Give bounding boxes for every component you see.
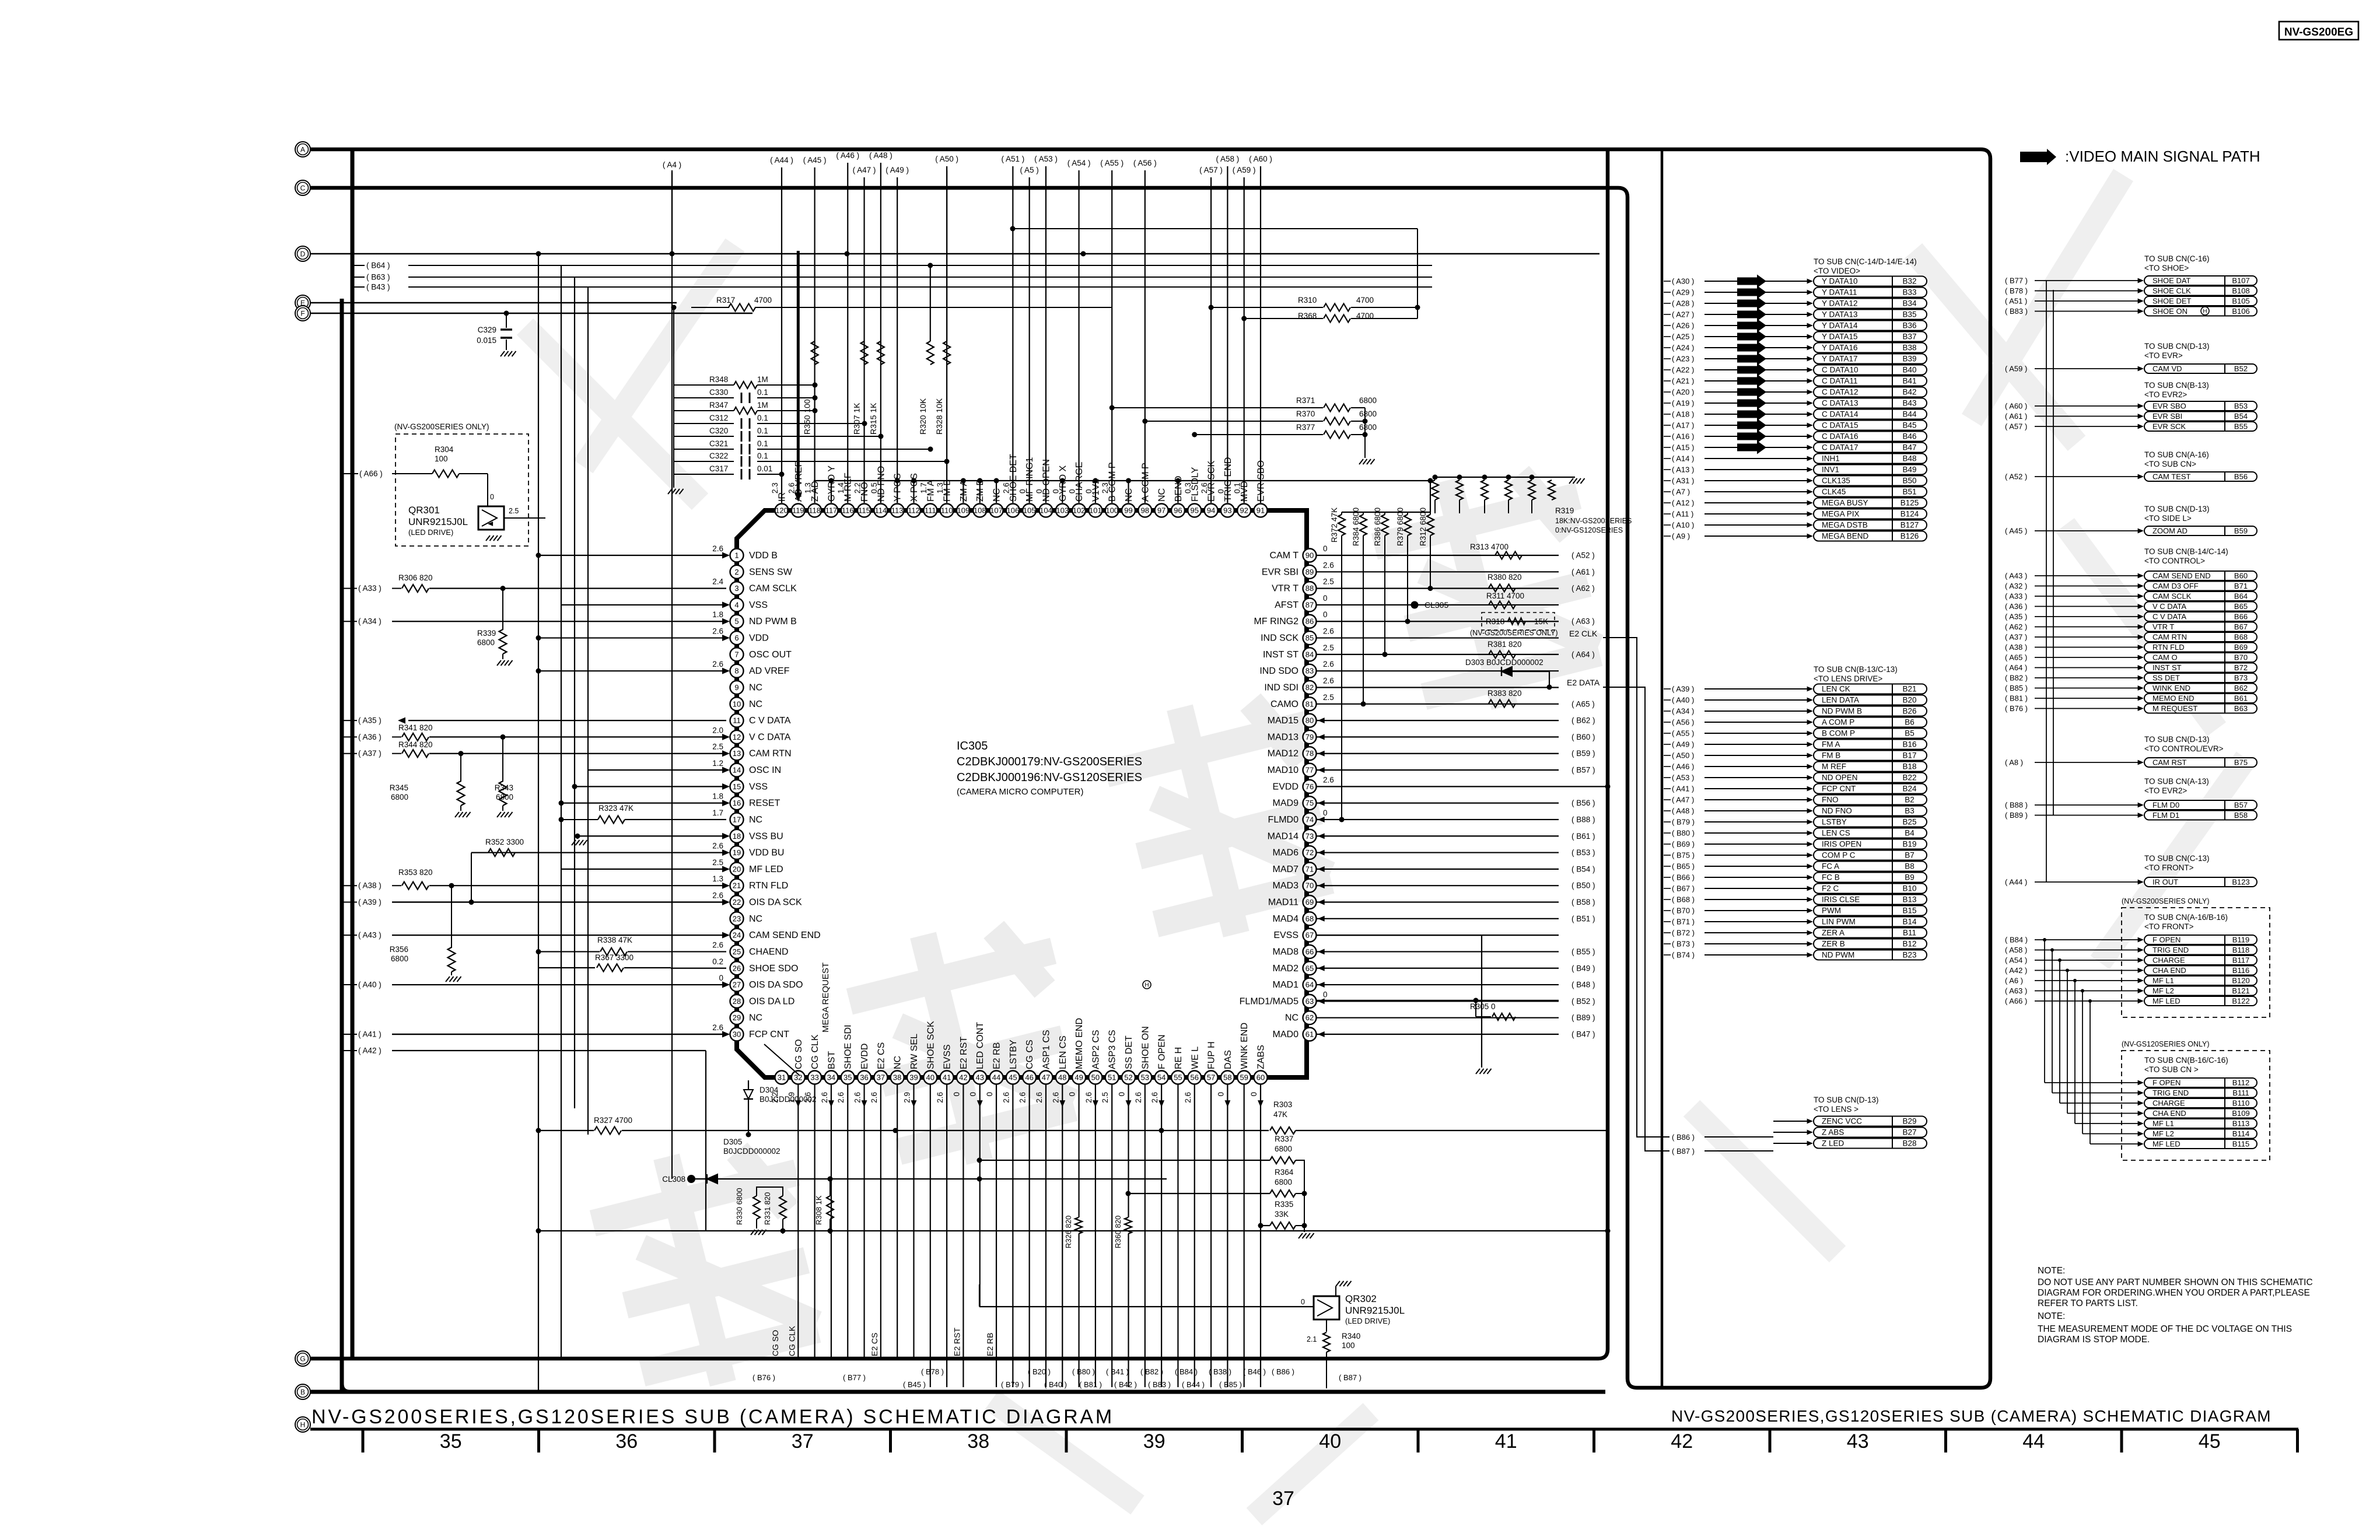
- svg-text:MEGA PIX: MEGA PIX: [1822, 510, 1860, 519]
- svg-text:TO SUB CN(D-13): TO SUB CN(D-13): [2144, 505, 2210, 513]
- svg-text:CAM SCLK: CAM SCLK: [749, 584, 797, 594]
- svg-text:82: 82: [1305, 683, 1314, 692]
- svg-text:AFST: AFST: [1275, 600, 1298, 610]
- svg-text:78: 78: [1305, 749, 1314, 758]
- svg-text:( B67 ): ( B67 ): [1672, 884, 1695, 893]
- svg-text:( B45 ): ( B45 ): [903, 1380, 926, 1389]
- svg-text:98: 98: [1141, 506, 1149, 515]
- svg-text:TO SUB CN(C-13): TO SUB CN(C-13): [2144, 854, 2210, 863]
- svg-text:37: 37: [792, 1430, 814, 1452]
- svg-text:1M: 1M: [757, 401, 768, 409]
- svg-text:VTR T: VTR T: [1272, 584, 1298, 594]
- svg-text:R303: R303: [1273, 1100, 1292, 1109]
- svg-text:( B76 ): ( B76 ): [2005, 704, 2028, 713]
- svg-text:VDD B: VDD B: [749, 551, 778, 561]
- svg-text:TRIG END: TRIG END: [2152, 1088, 2189, 1097]
- svg-text:( A66 ): ( A66 ): [2005, 997, 2027, 1006]
- svg-text:3: 3: [734, 584, 738, 593]
- svg-text:1M: 1M: [757, 375, 768, 384]
- svg-text:Y DATA13: Y DATA13: [1822, 310, 1858, 319]
- svg-text:( B79 ): ( B79 ): [1672, 818, 1695, 827]
- svg-text:( B70 ): ( B70 ): [1672, 907, 1695, 915]
- svg-text:2.6: 2.6: [712, 891, 723, 900]
- svg-text:TRIG END: TRIG END: [2152, 946, 2189, 954]
- svg-text:( B89 ): ( B89 ): [1571, 1013, 1595, 1022]
- svg-text:( A53 ): ( A53 ): [1672, 773, 1694, 782]
- svg-text:MF L2: MF L2: [2152, 986, 2174, 995]
- svg-text:D: D: [300, 250, 306, 258]
- svg-text:( A55 ): ( A55 ): [1100, 159, 1123, 167]
- svg-text:CAMO: CAMO: [1270, 699, 1298, 709]
- svg-text:B38: B38: [1902, 344, 1916, 352]
- svg-text:(NV-GS120SERIES ONLY): (NV-GS120SERIES ONLY): [2122, 1040, 2210, 1048]
- svg-text:2.6: 2.6: [712, 544, 723, 553]
- svg-text:( A37 ): ( A37 ): [358, 749, 381, 758]
- svg-text:( B38 ): ( B38 ): [1209, 1367, 1231, 1376]
- svg-text:2.0: 2.0: [712, 726, 723, 734]
- svg-text:103: 103: [1056, 506, 1069, 515]
- svg-text:EVSS: EVSS: [1273, 930, 1298, 940]
- svg-text:<TO LENS >: <TO LENS >: [1814, 1105, 1859, 1114]
- svg-text:117: 117: [825, 506, 838, 515]
- svg-text:15K: 15K: [1534, 617, 1548, 626]
- svg-text:B9: B9: [1905, 873, 1915, 882]
- svg-text:B5: B5: [1905, 729, 1915, 738]
- svg-text:TO SUB CN(B-13/C-13): TO SUB CN(B-13/C-13): [1814, 665, 1898, 674]
- svg-text:NC: NC: [749, 914, 762, 924]
- svg-text:Z LED: Z LED: [1822, 1139, 1845, 1148]
- svg-text:CAM TEST: CAM TEST: [2152, 473, 2191, 481]
- svg-text:B55: B55: [2234, 422, 2248, 431]
- svg-text:12: 12: [733, 733, 741, 741]
- svg-text:MAD15: MAD15: [1268, 716, 1298, 726]
- svg-text:C DATA14: C DATA14: [1822, 410, 1859, 419]
- svg-text:109: 109: [957, 506, 970, 515]
- svg-text:R305 0: R305 0: [1470, 1002, 1496, 1011]
- svg-text:R384 6800: R384 6800: [1352, 508, 1360, 546]
- svg-text:R328 10K: R328 10K: [935, 398, 944, 435]
- svg-text:2.6: 2.6: [1323, 561, 1334, 569]
- svg-text:<TO EVR2>: <TO EVR2>: [2144, 390, 2187, 399]
- svg-text:40: 40: [926, 1073, 935, 1082]
- svg-text:( A41 ): ( A41 ): [1672, 785, 1694, 793]
- svg-text:17: 17: [733, 815, 741, 824]
- svg-text:10: 10: [733, 699, 741, 708]
- svg-text:F OPEN: F OPEN: [2152, 1079, 2180, 1087]
- svg-text:ZABS: ZABS: [1256, 1045, 1266, 1069]
- svg-text:B12: B12: [1902, 940, 1916, 949]
- svg-text:MF RING2: MF RING2: [1254, 617, 1299, 626]
- svg-text:TO SUB CN(B-13): TO SUB CN(B-13): [2144, 381, 2209, 390]
- svg-text:( A56 ): ( A56 ): [1672, 718, 1694, 727]
- svg-text:68: 68: [1305, 914, 1314, 923]
- svg-text:( A9 ): ( A9 ): [1672, 532, 1690, 541]
- svg-text:SHOE DET: SHOE DET: [2152, 297, 2192, 306]
- svg-text:0: 0: [1323, 544, 1328, 553]
- svg-text:( A16 ): ( A16 ): [1672, 432, 1694, 441]
- svg-text:( B55 ): ( B55 ): [1571, 947, 1595, 956]
- svg-text:115: 115: [858, 506, 870, 515]
- svg-text:( A48 ): ( A48 ): [869, 151, 892, 160]
- svg-text:43: 43: [975, 1073, 984, 1082]
- svg-text::VIDEO MAIN SIGNAL PATH: :VIDEO MAIN SIGNAL PATH: [2065, 148, 2260, 165]
- svg-text:37: 37: [877, 1073, 885, 1082]
- svg-text:0: 0: [1323, 990, 1328, 999]
- svg-text:R371: R371: [1296, 396, 1315, 405]
- svg-text:( A45 ): ( A45 ): [2005, 527, 2027, 535]
- svg-text:72: 72: [1305, 848, 1314, 857]
- svg-text:INV1: INV1: [1822, 466, 1839, 474]
- svg-text:B51: B51: [1902, 488, 1916, 496]
- svg-text:( A18 ): ( A18 ): [1672, 410, 1694, 419]
- svg-text:57: 57: [1207, 1073, 1215, 1082]
- svg-text:2.6: 2.6: [1051, 1092, 1060, 1103]
- svg-text:MAD6: MAD6: [1273, 848, 1299, 858]
- svg-text:CAM O: CAM O: [2152, 653, 2178, 662]
- svg-text:ZOOM AD: ZOOM AD: [2152, 527, 2187, 535]
- svg-text:MAD0: MAD0: [1273, 1030, 1299, 1039]
- svg-text:( B57 ): ( B57 ): [1571, 766, 1595, 775]
- svg-text:B49: B49: [1902, 466, 1916, 474]
- svg-text:2.6: 2.6: [1084, 1092, 1093, 1103]
- svg-text:TO SUB CN(B-14/C-14): TO SUB CN(B-14/C-14): [2144, 547, 2228, 556]
- svg-text:53: 53: [1141, 1073, 1149, 1082]
- svg-text:2.6: 2.6: [1323, 660, 1334, 668]
- svg-text:NC: NC: [749, 699, 762, 709]
- svg-text:R353 820: R353 820: [398, 868, 433, 877]
- svg-text:C329: C329: [478, 325, 496, 334]
- svg-text:<TO SUB CN >: <TO SUB CN >: [2144, 1065, 2199, 1074]
- svg-text:D303 B0JCDD000002: D303 B0JCDD000002: [1465, 658, 1543, 667]
- svg-text:MAD13: MAD13: [1268, 732, 1298, 742]
- svg-text:LIN PWM: LIN PWM: [1822, 918, 1856, 926]
- svg-text:47: 47: [1042, 1073, 1050, 1082]
- svg-text:105: 105: [1023, 506, 1036, 515]
- svg-text:0: 0: [1216, 1092, 1225, 1097]
- svg-text:42: 42: [959, 1073, 967, 1082]
- svg-text:B29: B29: [1902, 1117, 1916, 1126]
- svg-text:VTR T: VTR T: [2152, 622, 2174, 631]
- svg-text:64: 64: [1305, 981, 1314, 989]
- svg-text:MAD14: MAD14: [1268, 831, 1298, 841]
- svg-text:0.5: 0.5: [870, 482, 878, 494]
- svg-text:EVR SBI: EVR SBI: [2152, 412, 2182, 421]
- svg-text:2.5: 2.5: [712, 858, 723, 867]
- svg-text:18: 18: [733, 832, 741, 841]
- svg-text:SHOE SCK: SHOE SCK: [926, 1021, 936, 1069]
- svg-text:( B73 ): ( B73 ): [1672, 940, 1695, 949]
- svg-text:( A44 ): ( A44 ): [770, 156, 793, 164]
- svg-text:FLMD1/MAD5: FLMD1/MAD5: [1240, 996, 1298, 1006]
- svg-text:B69: B69: [2234, 643, 2248, 652]
- svg-text:C: C: [300, 184, 306, 192]
- svg-text:( B77 ): ( B77 ): [843, 1373, 866, 1382]
- svg-text:B126: B126: [1901, 532, 1919, 541]
- svg-text:( A66 ): ( A66 ): [359, 470, 383, 478]
- svg-text:83: 83: [1305, 667, 1314, 675]
- svg-text:MEMO END: MEMO END: [2152, 694, 2194, 703]
- svg-text:112: 112: [908, 506, 920, 515]
- svg-text:2.6: 2.6: [712, 940, 723, 949]
- svg-text:( A30 ): ( A30 ): [1672, 277, 1694, 286]
- svg-text:( A35 ): ( A35 ): [358, 716, 381, 725]
- svg-text:FC B: FC B: [1822, 873, 1840, 882]
- svg-text:H: H: [300, 1421, 306, 1429]
- svg-text:41: 41: [1495, 1430, 1517, 1452]
- svg-text:H: H: [2203, 309, 2207, 315]
- svg-text:C322: C322: [709, 452, 728, 460]
- svg-text:0.015: 0.015: [477, 336, 496, 345]
- svg-text:R360 820: R360 820: [1114, 1216, 1122, 1248]
- svg-text:(NV-GS200SERIES ONLY): (NV-GS200SERIES ONLY): [1470, 629, 1558, 637]
- svg-text:B37: B37: [1902, 332, 1916, 341]
- svg-text:48: 48: [1058, 1073, 1066, 1082]
- svg-text:7: 7: [734, 650, 738, 659]
- svg-text:ND PWM B: ND PWM B: [749, 617, 797, 626]
- svg-text:B67: B67: [2234, 622, 2248, 631]
- svg-text:C V DATA: C V DATA: [2152, 612, 2186, 621]
- svg-text:( B82 ): ( B82 ): [2005, 674, 2028, 682]
- svg-text:R331 820: R331 820: [763, 1192, 772, 1225]
- svg-text:28: 28: [733, 997, 741, 1006]
- svg-text:74: 74: [1305, 815, 1314, 824]
- svg-text:B121: B121: [2232, 986, 2249, 995]
- svg-text:B68: B68: [2234, 633, 2248, 642]
- svg-text:B27: B27: [1902, 1128, 1916, 1137]
- svg-text:( B71 ): ( B71 ): [1672, 918, 1695, 926]
- svg-text:( A43 ): ( A43 ): [2005, 572, 2027, 580]
- svg-text:( B84 ): ( B84 ): [1175, 1367, 1198, 1376]
- svg-text:( A41 ): ( A41 ): [358, 1030, 381, 1038]
- svg-text:( B49 ): ( B49 ): [1571, 964, 1595, 972]
- svg-text:C312: C312: [709, 414, 728, 422]
- svg-text:R370: R370: [1296, 409, 1315, 418]
- svg-text:B123: B123: [2232, 878, 2249, 887]
- svg-text:51: 51: [1108, 1073, 1116, 1082]
- svg-text:NV-GS200EG: NV-GS200EG: [2284, 26, 2353, 38]
- svg-text:R381 820: R381 820: [1487, 640, 1522, 649]
- svg-text:( A31 ): ( A31 ): [1672, 477, 1694, 485]
- svg-text:( A43 ): ( A43 ): [358, 931, 381, 940]
- svg-text:2.6: 2.6: [787, 482, 796, 494]
- svg-text:B34: B34: [1902, 299, 1917, 308]
- svg-text:B8: B8: [1905, 862, 1915, 871]
- svg-text:45: 45: [2199, 1430, 2221, 1452]
- svg-text:( B85 ): ( B85 ): [2005, 684, 2028, 692]
- svg-text:84: 84: [1305, 650, 1314, 659]
- svg-text:VSS: VSS: [749, 600, 768, 610]
- svg-text:RTN FLD: RTN FLD: [2152, 643, 2185, 652]
- svg-text:MAD9: MAD9: [1273, 799, 1299, 808]
- svg-text:39: 39: [1143, 1430, 1165, 1452]
- svg-text:R323 47K: R323 47K: [598, 804, 633, 813]
- svg-text:B124: B124: [1901, 510, 1919, 519]
- svg-text:( A40 ): ( A40 ): [358, 981, 381, 989]
- svg-text:R356: R356: [390, 945, 408, 954]
- svg-text:71: 71: [1305, 864, 1314, 873]
- svg-text:QR301: QR301: [408, 505, 440, 516]
- svg-text:B4: B4: [1905, 829, 1915, 838]
- svg-text:C DATA17: C DATA17: [1822, 443, 1859, 452]
- svg-text:37: 37: [1272, 1487, 1294, 1510]
- svg-text:FUP H: FUP H: [1207, 1041, 1217, 1069]
- svg-text:B107: B107: [2232, 276, 2249, 285]
- svg-text:MF L1: MF L1: [2152, 977, 2174, 985]
- svg-text:E2 RST: E2 RST: [952, 1328, 961, 1356]
- svg-text:( A13 ): ( A13 ): [1672, 466, 1694, 474]
- svg-text:B48: B48: [1902, 454, 1916, 463]
- svg-text:67: 67: [1305, 931, 1314, 940]
- svg-text:<TO SIDE L>: <TO SIDE L>: [2144, 514, 2192, 523]
- svg-text:( A7 ): ( A7 ): [1672, 488, 1690, 496]
- svg-text:B112: B112: [2232, 1079, 2249, 1087]
- svg-text:( A45 ): ( A45 ): [803, 156, 827, 164]
- svg-text:THE MEASUREMENT MODE OF THE DC: THE MEASUREMENT MODE OF THE DC VOLTAGE O…: [2038, 1324, 2292, 1334]
- svg-text:1.7: 1.7: [712, 808, 723, 817]
- svg-text:B70: B70: [2234, 653, 2248, 662]
- svg-text:R350 100: R350 100: [803, 399, 812, 435]
- svg-text:77: 77: [1305, 766, 1314, 775]
- svg-text:89: 89: [1305, 568, 1314, 576]
- svg-text:R335: R335: [1275, 1200, 1293, 1209]
- svg-text:65: 65: [1305, 964, 1314, 972]
- svg-text:33K: 33K: [1275, 1210, 1289, 1219]
- svg-text:0: 0: [1051, 489, 1060, 494]
- svg-text:( B68 ): ( B68 ): [1672, 895, 1695, 904]
- svg-text:E2 RB: E2 RB: [992, 1042, 1002, 1069]
- svg-text:( A26 ): ( A26 ): [1672, 321, 1694, 330]
- svg-text:38: 38: [893, 1073, 901, 1082]
- svg-text:87: 87: [1305, 600, 1314, 609]
- svg-text:B24: B24: [1902, 785, 1917, 793]
- svg-text:( B86 ): ( B86 ): [1672, 1133, 1695, 1142]
- svg-text:116: 116: [842, 506, 854, 515]
- svg-text:DIAGRAM FOR ORDERING.WHEN YOU: DIAGRAM FOR ORDERING.WHEN YOU ORDER A PA…: [2038, 1288, 2310, 1298]
- svg-text:B66: B66: [2234, 612, 2248, 621]
- svg-text:LED CONT: LED CONT: [975, 1022, 985, 1069]
- svg-text:( A59 ): ( A59 ): [1233, 166, 1256, 174]
- svg-text:C V DATA: C V DATA: [749, 716, 791, 726]
- svg-text:2.1: 2.1: [1307, 1335, 1317, 1343]
- svg-text:B65: B65: [2234, 602, 2248, 611]
- svg-text:B2: B2: [1905, 796, 1915, 804]
- svg-text:( B63 ): ( B63 ): [366, 273, 390, 282]
- svg-text:FC A: FC A: [1822, 862, 1839, 871]
- svg-text:B25: B25: [1902, 818, 1916, 827]
- svg-text:( A54 ): ( A54 ): [1067, 159, 1091, 167]
- svg-text:ASP1 CS: ASP1 CS: [1041, 1030, 1051, 1069]
- svg-text:55: 55: [1174, 1073, 1182, 1082]
- svg-text:(LED DRIVE): (LED DRIVE): [1345, 1317, 1390, 1325]
- svg-text:( A33 ): ( A33 ): [358, 584, 381, 593]
- svg-text:( B43 ): ( B43 ): [366, 283, 390, 292]
- svg-text:35: 35: [843, 1073, 852, 1082]
- svg-text:( A24 ): ( A24 ): [1672, 344, 1694, 352]
- svg-text:TO SUB CN(A-16/B-16): TO SUB CN(A-16/B-16): [2144, 913, 2228, 922]
- svg-text:73: 73: [1305, 832, 1314, 841]
- svg-text:B110: B110: [2232, 1099, 2249, 1108]
- svg-text:( A47 ): ( A47 ): [853, 166, 876, 174]
- svg-text:R343: R343: [495, 783, 513, 792]
- svg-text:TO SUB CN(A-13): TO SUB CN(A-13): [2144, 777, 2209, 786]
- svg-text:Y DATA11: Y DATA11: [1822, 288, 1857, 297]
- svg-text:IND SCK: IND SCK: [1261, 633, 1298, 643]
- svg-text:B11: B11: [1903, 929, 1916, 937]
- svg-text:SENS SW: SENS SW: [749, 567, 793, 577]
- svg-text:F: F: [300, 310, 304, 318]
- svg-text:<TO EVR2>: <TO EVR2>: [2144, 786, 2187, 795]
- svg-text:0.01: 0.01: [757, 464, 772, 473]
- svg-text:NV-GS200SERIES,GS120SERIES SUB: NV-GS200SERIES,GS120SERIES SUB (CAMERA) …: [1671, 1407, 2271, 1425]
- svg-text:B10: B10: [1902, 884, 1916, 893]
- svg-text:66: 66: [1305, 947, 1314, 956]
- svg-text:CAM RTN: CAM RTN: [2152, 633, 2187, 642]
- svg-text:0: 0: [985, 1092, 994, 1097]
- svg-text:0: 0: [1118, 1092, 1126, 1097]
- svg-text:( A14 ): ( A14 ): [1672, 454, 1694, 463]
- svg-text:( A53 ): ( A53 ): [1034, 155, 1058, 163]
- svg-text:0: 0: [1249, 1092, 1258, 1097]
- svg-text:IND SDO: IND SDO: [1259, 666, 1298, 676]
- svg-text:95: 95: [1191, 506, 1199, 515]
- svg-text:CAM SEND END: CAM SEND END: [2152, 572, 2211, 580]
- svg-text:IRIS OPEN: IRIS OPEN: [1822, 840, 1861, 849]
- svg-text:NV-GS200SERIES,GS120SERIES SUB: NV-GS200SERIES,GS120SERIES SUB (CAMERA) …: [311, 1406, 1114, 1428]
- svg-text:100: 100: [435, 454, 448, 463]
- svg-text:114: 114: [874, 506, 887, 515]
- svg-text:0: 0: [1068, 489, 1077, 494]
- svg-text:118: 118: [808, 506, 821, 515]
- svg-text:( A32 ): ( A32 ): [2005, 582, 2027, 590]
- svg-text:108: 108: [974, 506, 986, 515]
- svg-text:<TO CONTROL>: <TO CONTROL>: [2144, 556, 2205, 565]
- svg-text:2.6: 2.6: [1002, 482, 1010, 494]
- svg-text:14: 14: [733, 766, 741, 775]
- svg-text:SHOE CLK: SHOE CLK: [2152, 286, 2191, 295]
- svg-text:( A61 ): ( A61 ): [1571, 568, 1595, 576]
- svg-text:0.1: 0.1: [757, 439, 768, 448]
- svg-text:D304: D304: [759, 1086, 779, 1094]
- svg-text:B0JCDD000002: B0JCDD000002: [759, 1095, 817, 1104]
- svg-text:93: 93: [1223, 506, 1231, 515]
- svg-text:B16: B16: [1902, 740, 1916, 749]
- svg-text:47K: 47K: [1273, 1110, 1287, 1119]
- svg-text:( A63 ): ( A63 ): [2005, 986, 2027, 995]
- svg-text:( A20 ): ( A20 ): [1672, 388, 1694, 397]
- svg-text:NC: NC: [749, 815, 762, 825]
- svg-text:92: 92: [1240, 506, 1248, 515]
- svg-text:ND PWM B: ND PWM B: [1822, 707, 1862, 716]
- svg-text:2.6: 2.6: [1134, 1092, 1143, 1103]
- svg-text:52: 52: [1124, 1073, 1132, 1082]
- svg-text:( B85 ): ( B85 ): [1219, 1380, 1242, 1389]
- svg-text:2.4: 2.4: [712, 577, 723, 586]
- svg-text:2.3: 2.3: [1101, 482, 1109, 494]
- svg-text:4700: 4700: [1356, 296, 1374, 304]
- svg-text:( B56 ): ( B56 ): [1571, 799, 1595, 807]
- svg-text:R307 1K: R307 1K: [852, 402, 862, 435]
- svg-text:OSC OUT: OSC OUT: [749, 650, 792, 660]
- svg-text:13: 13: [733, 749, 741, 758]
- svg-text:( B66 ): ( B66 ): [1672, 873, 1695, 882]
- svg-text:B117: B117: [2232, 956, 2249, 965]
- svg-text:EVDD: EVDD: [860, 1044, 870, 1069]
- svg-text:2.6: 2.6: [712, 1023, 723, 1032]
- svg-text:R319: R319: [1555, 506, 1574, 515]
- svg-text:2.6: 2.6: [820, 1092, 829, 1103]
- svg-text:100: 100: [1342, 1341, 1355, 1350]
- svg-text:R379 6800: R379 6800: [1396, 508, 1405, 546]
